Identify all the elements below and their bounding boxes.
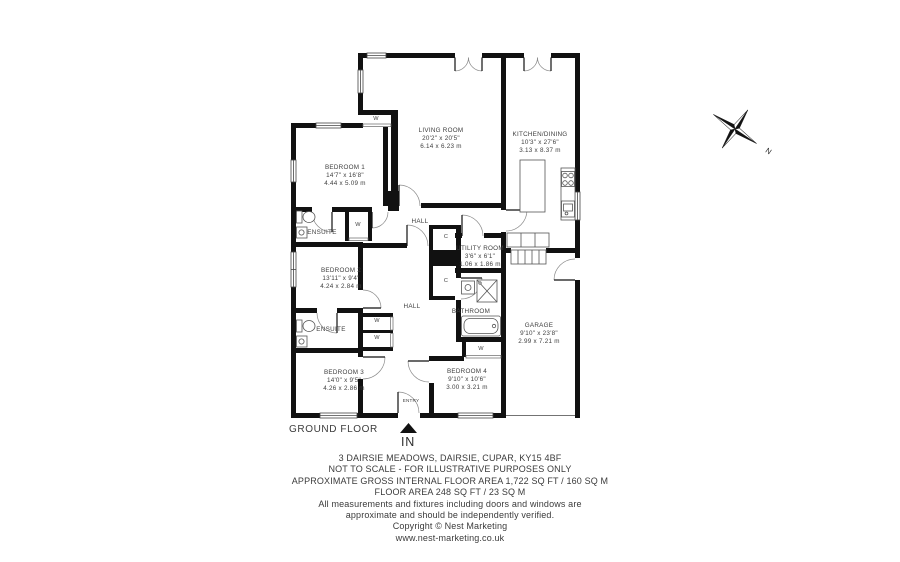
bathroom-label: BATHROOM [452,308,490,315]
room-label-kitchen-dining: KITCHEN/DINING 10'3" x 27'6" 3.13 x 8.37… [513,131,568,155]
footer-garage-area: FLOOR AREA 248 SQ FT / 23 SQ M [0,487,900,498]
room-label-living-room: LIVING ROOM 20'2" x 20'5" 6.14 x 6.23 m [419,127,464,151]
toilet [297,320,303,332]
shower [477,280,497,302]
footer-copyright: Copyright © Nest Marketing [0,521,900,532]
room-label-bedroom-4: BEDROOM 4 9'10" x 10'6" 3.00 x 3.21 m [446,368,487,392]
toilet [297,211,303,223]
wardrobe-label: W [374,318,380,324]
hall-lower-label: HALL [404,303,421,310]
compass-north-label: N [764,146,774,156]
footer-text-block: 3 DAIRSIE MEADOWS, DAIRSIE, CUPAR, KY15 … [0,453,900,544]
room-label-bedroom-1: BEDROOM 1 14'7" x 16'8" 4.44 x 5.09 m [324,164,365,188]
footer-address: 3 DAIRSIE MEADOWS, DAIRSIE, CUPAR, KY15 … [0,453,900,464]
bathtub [462,316,501,336]
compass-icon: N [701,95,774,162]
wardrobe-label: W [374,335,380,341]
cupboard-label: C [444,278,448,284]
floorplan-page: N LIVING ROOM 20'2" x 20'5" 6.14 x 6.23 … [0,0,900,562]
room-label-bedroom-3: BEDROOM 3 14'0" x 9'5" 4.26 x 2.86 m [323,369,364,393]
entrance-in-label: IN [401,435,415,449]
footer-measurements-note-1: All measurements and fixtures including … [0,499,900,510]
wardrobe-label: W [478,346,484,352]
steps [511,250,546,264]
kitchen-base-units [507,233,549,247]
room-label-utility-room: UTILITY ROOM 3'6" x 6'1" 1.06 x 1.86 m [456,245,504,269]
room-label-bedroom-2: BEDROOM 2 13'11" x 9'4" 4.24 x 2.84 m [320,267,361,291]
ensuite-upper-label: ENSUITE [307,229,336,236]
room-label-garage: GARAGE 9'10" x 23'8" 2.99 x 7.21 m [518,322,559,346]
footer-floor-area: APPROXIMATE GROSS INTERNAL FLOOR AREA 1,… [0,476,900,487]
wardrobe-label: W [355,222,361,228]
ensuite-lower-label: ENSUITE [316,326,345,333]
floor-title: GROUND FLOOR [289,424,378,435]
footer-website: www.nest-marketing.co.uk [0,533,900,544]
kitchen-island [520,160,545,212]
footer-measurements-note-2: approximate and should be independently … [0,510,900,521]
entrance-arrow-icon [400,423,417,433]
footer-disclaimer-scale: NOT TO SCALE - FOR ILLUSTRATIVE PURPOSES… [0,464,900,475]
hall-upper-label: HALL [412,218,429,225]
cupboard-label: C [444,234,448,240]
wardrobe-label: W [373,116,379,122]
entry-label: ENTRY [403,398,420,403]
